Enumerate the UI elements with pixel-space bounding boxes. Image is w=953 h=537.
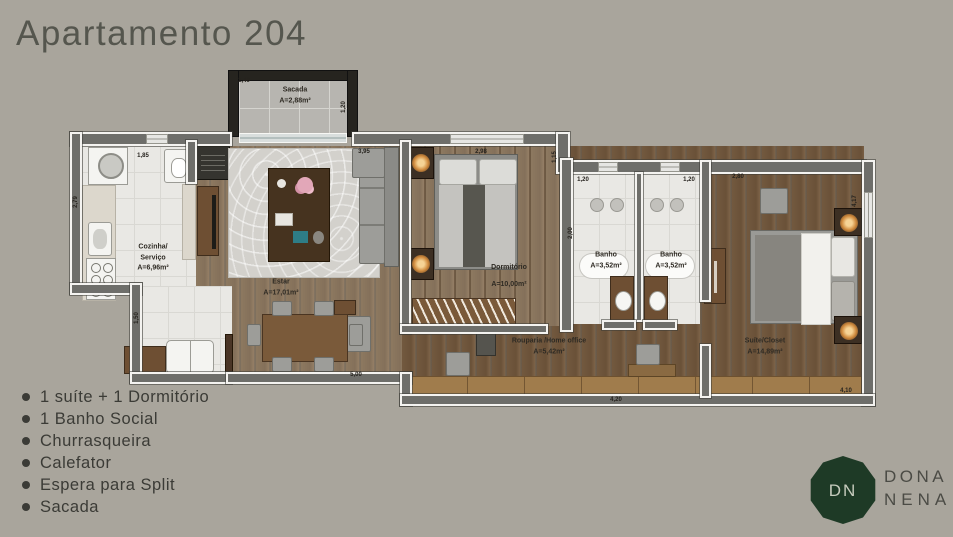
wardrobe xyxy=(412,298,516,326)
room-area: A=5,42m² xyxy=(533,348,564,355)
bedroom-window xyxy=(450,134,524,144)
sofa-back xyxy=(384,147,399,267)
wall xyxy=(400,394,875,406)
decor-box xyxy=(293,231,308,243)
logo-word-line1: DONA xyxy=(884,467,951,487)
feature-item: Churrasqueira xyxy=(14,430,209,452)
room-area: A=3,52m² xyxy=(590,262,621,269)
flower-vase xyxy=(297,177,313,193)
wall xyxy=(602,320,636,330)
pillow xyxy=(831,237,855,277)
room-name: Sacada xyxy=(283,87,308,94)
pillow xyxy=(479,159,517,185)
dining-chair xyxy=(349,324,363,346)
wall xyxy=(70,132,82,294)
dim-label: 2,98 xyxy=(475,149,487,155)
logo-word-line2: NENA xyxy=(884,490,951,510)
nightstand xyxy=(834,208,862,236)
shower-drain xyxy=(590,198,604,212)
nightstand xyxy=(834,316,862,344)
feature-text: Espera para Split xyxy=(40,476,175,495)
basin xyxy=(649,291,666,311)
room-area: A=3,52m² xyxy=(655,262,686,269)
wall xyxy=(226,372,412,384)
balcony-sliding-door xyxy=(239,133,347,143)
dim-label: 4,17 xyxy=(852,195,858,207)
side-table xyxy=(334,300,356,315)
pouf xyxy=(760,188,788,214)
wall xyxy=(700,160,711,302)
dim-label: 1,20 xyxy=(341,101,347,113)
pillow xyxy=(831,281,855,321)
room-area: A=17,01m² xyxy=(263,289,298,296)
kitchen-sink xyxy=(88,222,112,256)
lamp xyxy=(412,255,430,273)
dim-label: 1,20 xyxy=(577,177,589,183)
logo-mark: DN xyxy=(806,453,880,527)
feature-item: Sacada xyxy=(14,496,209,518)
dim-label: 4,20 xyxy=(610,397,622,403)
lamp xyxy=(412,154,430,172)
feature-item: Espera para Split xyxy=(14,474,209,496)
tv xyxy=(212,195,216,249)
duvet xyxy=(439,185,515,267)
room-label-banho2: Banho A=3,52m² xyxy=(655,251,686,272)
room-label-sacada: Sacada A=2,88m² xyxy=(279,86,310,107)
pillow xyxy=(439,159,477,185)
books xyxy=(275,213,293,226)
room-name: Cozinha/ xyxy=(138,243,167,250)
room-area: A=2,88m² xyxy=(279,97,310,104)
room-label-dormitorio: Dormitório A=10,00m² xyxy=(491,260,527,294)
wall xyxy=(635,172,643,322)
room-area: A=6,96m² xyxy=(137,264,168,271)
dining-chair xyxy=(272,357,292,372)
logo-initials: DN xyxy=(829,481,858,500)
room-label-banho1: Banho A=3,52m² xyxy=(590,251,621,272)
coffee-table xyxy=(268,168,330,262)
feature-text: 1 suíte + 1 Dormitório xyxy=(40,388,209,407)
feature-text: Calefator xyxy=(40,454,111,473)
logo-wordmark: DONA NENA xyxy=(884,467,951,510)
barbecue-grill xyxy=(196,146,230,180)
dim-label: 3,95 xyxy=(358,149,370,155)
suite-window xyxy=(864,192,873,238)
brochure-page: { "page": { "title": "Apartamento 204" }… xyxy=(0,0,953,537)
bottom-bench xyxy=(410,376,862,396)
suite-bed xyxy=(750,230,858,324)
room-name: Banho xyxy=(595,252,617,259)
lamp xyxy=(840,322,858,340)
feature-item: Calefator xyxy=(14,452,209,474)
bedroom-bed xyxy=(434,154,518,270)
room-area: A=14,89m² xyxy=(747,348,782,355)
shower-drain xyxy=(650,198,664,212)
room-name: Serviço xyxy=(140,254,165,261)
dining-chair xyxy=(247,324,261,346)
refrigerator xyxy=(166,340,214,374)
kitchen-window xyxy=(146,134,168,144)
floor-plan: Sacada A=2,88m² Cozinha/ Serviço A=6,96m… xyxy=(0,0,953,420)
dim-label: 5,00 xyxy=(350,372,362,378)
wall xyxy=(400,140,411,334)
lamp xyxy=(840,214,858,232)
feature-list: 1 suíte + 1 Dormitório 1 Banho Social Ch… xyxy=(14,386,209,518)
room-label-rouparia: Rouparia /Home office A=5,42m² xyxy=(512,337,586,358)
wall xyxy=(560,158,573,332)
wall xyxy=(700,344,711,398)
room-label-estar: Estar A=17,01m² xyxy=(263,278,298,299)
feature-text: Sacada xyxy=(40,498,99,517)
room-name: Estar xyxy=(272,279,290,286)
dining-chair xyxy=(272,301,292,316)
washing-machine xyxy=(88,147,128,185)
dim-label: 1,20 xyxy=(683,177,695,183)
bathroom2-window xyxy=(660,162,680,172)
vase xyxy=(313,231,324,244)
room-name: Rouparia /Home office xyxy=(512,338,586,345)
shower-drain xyxy=(610,198,624,212)
bathroom-vanity xyxy=(644,276,668,322)
dim-label: 1,15 xyxy=(552,151,558,163)
room-name: Banho xyxy=(660,252,682,259)
room-label-suite: Suíte/Closet A=14,89m² xyxy=(745,337,785,358)
wall xyxy=(186,140,197,184)
feature-item: 1 Banho Social xyxy=(14,408,209,430)
brand-logo: DN DONA NENA xyxy=(806,453,953,533)
bathroom1-window xyxy=(598,162,618,172)
dim-label: 1,50 xyxy=(134,312,140,324)
room-area: A=10,00m² xyxy=(491,281,526,288)
wall xyxy=(130,372,232,384)
feature-item: 1 suíte + 1 Dormitório xyxy=(14,386,209,408)
entry-door xyxy=(225,334,233,374)
dim-label: 2,40 xyxy=(238,78,250,84)
bathroom-vanity xyxy=(610,276,634,322)
tv-cabinet xyxy=(197,186,219,256)
kitchen-peninsula xyxy=(182,184,196,260)
basin xyxy=(615,291,632,311)
room-name: Dormitório xyxy=(491,264,527,271)
balcony-wall xyxy=(347,70,358,137)
dim-label: 2,79 xyxy=(73,196,79,208)
dim-label: 1,85 xyxy=(137,153,149,159)
wall xyxy=(400,324,548,334)
home-office-desk xyxy=(628,364,676,377)
desk-chair xyxy=(446,352,470,376)
shower-drain xyxy=(670,198,684,212)
dining-chair xyxy=(314,301,334,316)
duvet xyxy=(801,233,831,325)
feature-text: Churrasqueira xyxy=(40,432,151,451)
blanket xyxy=(755,235,805,321)
dining-chair xyxy=(314,357,334,372)
dim-label: 4,10 xyxy=(840,388,852,394)
desk-chair xyxy=(636,344,660,365)
wall xyxy=(643,320,677,330)
dining-table xyxy=(262,314,348,362)
dim-label: 2,00 xyxy=(568,227,574,239)
room-name: Suíte/Closet xyxy=(745,338,785,345)
wall xyxy=(130,283,142,383)
dim-label: 2,80 xyxy=(732,174,744,180)
room-label-cozinha: Cozinha/ Serviço A=6,96m² xyxy=(137,242,168,274)
feature-text: 1 Banho Social xyxy=(40,410,158,429)
